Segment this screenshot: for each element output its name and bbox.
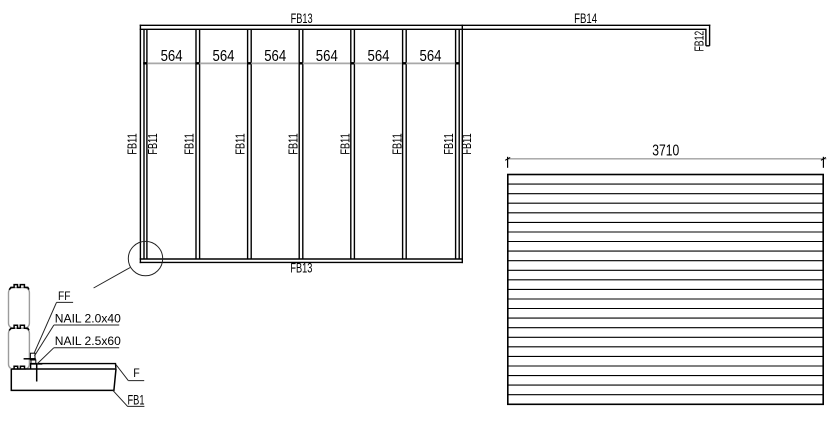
- svg-text:FB13: FB13: [290, 260, 312, 275]
- svg-text:FB11: FB11: [232, 133, 247, 154]
- svg-text:NAIL 2.5x60: NAIL 2.5x60: [55, 334, 121, 348]
- svg-text:F: F: [133, 368, 140, 380]
- svg-text:564: 564: [264, 48, 286, 65]
- svg-text:FB11: FB11: [145, 133, 160, 154]
- svg-text:FF: FF: [58, 291, 71, 303]
- svg-text:FB12: FB12: [692, 31, 706, 52]
- svg-text:FB14: FB14: [574, 11, 597, 26]
- svg-text:FB11: FB11: [389, 133, 404, 154]
- svg-text:FB11: FB11: [286, 133, 301, 154]
- svg-text:FB11: FB11: [338, 133, 353, 154]
- svg-text:FB11: FB11: [441, 133, 456, 154]
- svg-text:NAIL 2.0x40: NAIL 2.0x40: [55, 311, 121, 325]
- svg-text:FB11: FB11: [124, 133, 139, 154]
- svg-text:564: 564: [368, 48, 390, 65]
- svg-text:564: 564: [316, 48, 338, 65]
- svg-text:564: 564: [213, 48, 235, 65]
- svg-text:FB11: FB11: [181, 133, 196, 154]
- svg-text:3710: 3710: [652, 142, 679, 159]
- svg-text:564: 564: [420, 48, 442, 65]
- svg-text:FB11: FB11: [459, 133, 474, 154]
- svg-text:FB13: FB13: [291, 11, 313, 26]
- svg-text:564: 564: [161, 48, 183, 65]
- svg-text:FB1: FB1: [128, 391, 145, 407]
